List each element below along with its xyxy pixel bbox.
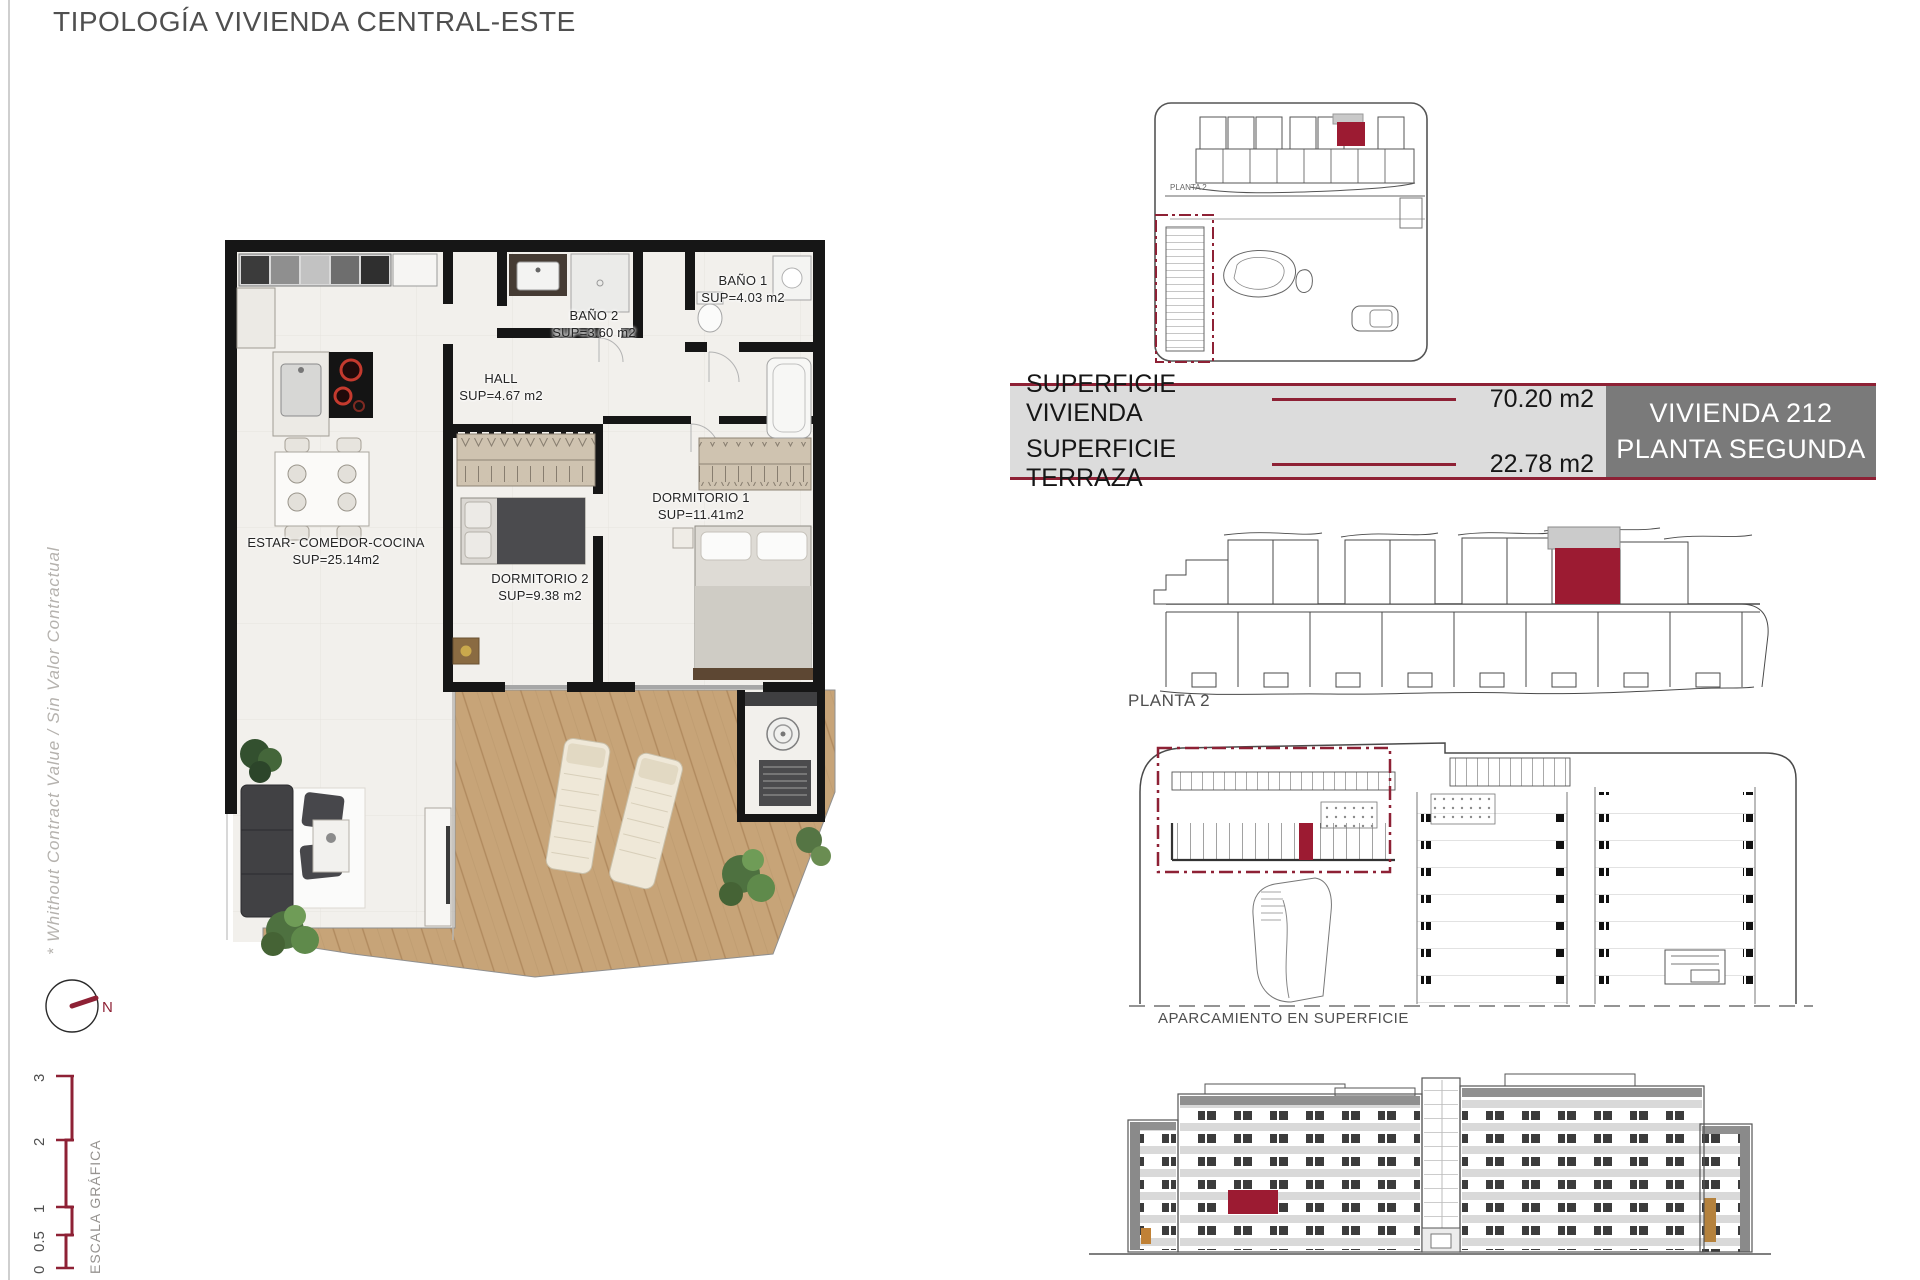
scale-tick-0: 0 — [31, 1266, 48, 1274]
bottom-unit-row — [1160, 604, 1768, 694]
site-plan-label: PLANTA 2 — [1170, 183, 1207, 192]
site-plan: PLANTA 2 — [1140, 95, 1440, 380]
room-area: SUP=25.14m2 — [236, 552, 436, 569]
surface-label: SUPERFICIE TERRAZA — [1026, 435, 1264, 493]
room-label-dorm1: DORMITORIO 1 SUP=11.41m2 — [621, 490, 781, 524]
orange-accent-left — [1141, 1228, 1151, 1244]
site-plan-drawing: PLANTA 2 — [1140, 95, 1440, 380]
room-label-estar: ESTAR- COMEDOR-COCINA SUP=25.14m2 — [236, 535, 436, 569]
unit-number: VIVIENDA 212 — [1649, 396, 1832, 431]
surface-value: 22.78 m2 — [1474, 450, 1594, 479]
room-area: SUP=3.60 m2 — [514, 325, 674, 342]
coffee-table — [313, 820, 349, 872]
surface-table: SUPERFICIE VIVIENDA 70.20 m2 SUPERFICIE … — [1010, 386, 1606, 477]
scale-tick-1: 1 — [31, 1205, 48, 1213]
plan-sheet: TIPOLOGÍA VIVIENDA CENTRAL-ESTE * Whitho… — [0, 0, 1920, 1280]
disclaimer-note: * Whithout Contract Value / Sin Valor Co… — [44, 547, 64, 955]
highlighted-unit-site — [1337, 122, 1365, 146]
scale-title: ESCALA GRÁFICA — [87, 1139, 103, 1274]
parking-planters — [1321, 794, 1495, 828]
room-label-bano1: BAÑO 1 SUP=4.03 m2 — [663, 273, 823, 307]
site-building-row — [1190, 114, 1415, 193]
compass-drawing: N — [40, 976, 120, 1040]
highlighted-parking-spot — [1299, 823, 1313, 860]
scale-tick-2: 2 — [31, 1138, 48, 1146]
unit-floor: PLANTA SEGUNDA — [1616, 432, 1866, 467]
leader-line — [1272, 398, 1456, 401]
planta2-label: PLANTA 2 — [1128, 691, 1210, 711]
site-pond — [1224, 250, 1313, 297]
page-title: TIPOLOGÍA VIVIENDA CENTRAL-ESTE — [53, 6, 576, 38]
orange-accent-right — [1704, 1198, 1716, 1242]
dining-table — [275, 452, 369, 526]
site-car — [1352, 306, 1398, 331]
parking-sculpture — [1253, 878, 1332, 1002]
parking-drawing — [1125, 732, 1820, 1037]
top-unit-row — [1154, 527, 1752, 604]
surface-value: 70.20 m2 — [1474, 385, 1594, 414]
surface-label: SUPERFICIE VIVIENDA — [1026, 370, 1264, 428]
room-label-bano2: BAÑO 2 SUP=3.60 m2 — [514, 308, 674, 342]
room-name: DORMITORIO 1 — [621, 490, 781, 507]
floor-plan-drawing — [225, 240, 845, 985]
highlighted-unit-planta2 — [1555, 548, 1620, 604]
parking-plan: APARCAMIENTO EN SUPERFICIE — [1125, 732, 1820, 1037]
parking-label: APARCAMIENTO EN SUPERFICIE — [1158, 1010, 1409, 1027]
compass-north-label: N — [102, 999, 113, 1016]
sofa — [241, 785, 293, 917]
elevation-drawing — [1085, 1062, 1775, 1262]
scale-b​ar-drawing: 0 0.5 1 2 3 ESCALA GRÁFICA — [28, 1060, 138, 1280]
shower-2 — [571, 254, 629, 312]
scale-tick-05: 0.5 — [31, 1231, 48, 1252]
room-label-dorm2: DORMITORIO 2 SUP=9.38 m2 — [455, 571, 625, 605]
surface-row-terraza: SUPERFICIE TERRAZA 22.78 m2 — [1026, 435, 1594, 493]
fridge — [393, 254, 437, 286]
summary-bar: SUPERFICIE VIVIENDA 70.20 m2 SUPERFICIE … — [1010, 383, 1876, 480]
scale-bar-line — [66, 1076, 72, 1268]
compass: N — [40, 976, 120, 1040]
scale-tick-3: 3 — [31, 1074, 48, 1082]
compass-needle — [72, 998, 96, 1006]
highlighted-unit-elevation — [1228, 1190, 1278, 1214]
room-name: BAÑO 2 — [514, 308, 674, 325]
planta2-drawing — [1120, 505, 1785, 720]
leader-line — [1272, 463, 1456, 466]
site-road-band — [1165, 196, 1425, 228]
elevation-blocks — [1128, 1078, 1752, 1252]
dining-set — [275, 438, 369, 540]
surface-row-vivienda: SUPERFICIE VIVIENDA 70.20 m2 — [1026, 370, 1594, 428]
room-area: SUP=4.03 m2 — [663, 290, 823, 307]
room-label-hall: HALL SUP=4.67 m2 — [421, 371, 581, 405]
room-name: ESTAR- COMEDOR-COCINA — [236, 535, 436, 552]
unit-terrace-gray — [1548, 527, 1620, 549]
room-area: SUP=4.67 m2 — [421, 388, 581, 405]
room-name: DORMITORIO 2 — [455, 571, 625, 588]
apartment-floor-plan: ESTAR- COMEDOR-COCINA SUP=25.14m2 HALL S… — [225, 240, 845, 985]
room-name: BAÑO 1 — [663, 273, 823, 290]
room-area: SUP=9.38 m2 — [455, 588, 625, 605]
unit-info-box: VIVIENDA 212 PLANTA SEGUNDA — [1606, 386, 1876, 477]
toilet — [698, 304, 722, 332]
room-name: HALL — [421, 371, 581, 388]
scale-bar: 0 0.5 1 2 3 ESCALA GRÁFICA — [28, 1060, 138, 1280]
left-margin-line — [8, 0, 10, 1280]
room-area: SUP=11.41m2 — [621, 507, 781, 524]
corridor-lines — [1166, 604, 1760, 612]
planta2-key-plan: PLANTA 2 — [1120, 505, 1785, 720]
elevation-entrance — [1422, 1228, 1460, 1252]
facade-elevation — [1085, 1062, 1775, 1262]
parking-structure-right — [1595, 787, 1755, 1004]
site-parking-zone — [1156, 215, 1213, 362]
